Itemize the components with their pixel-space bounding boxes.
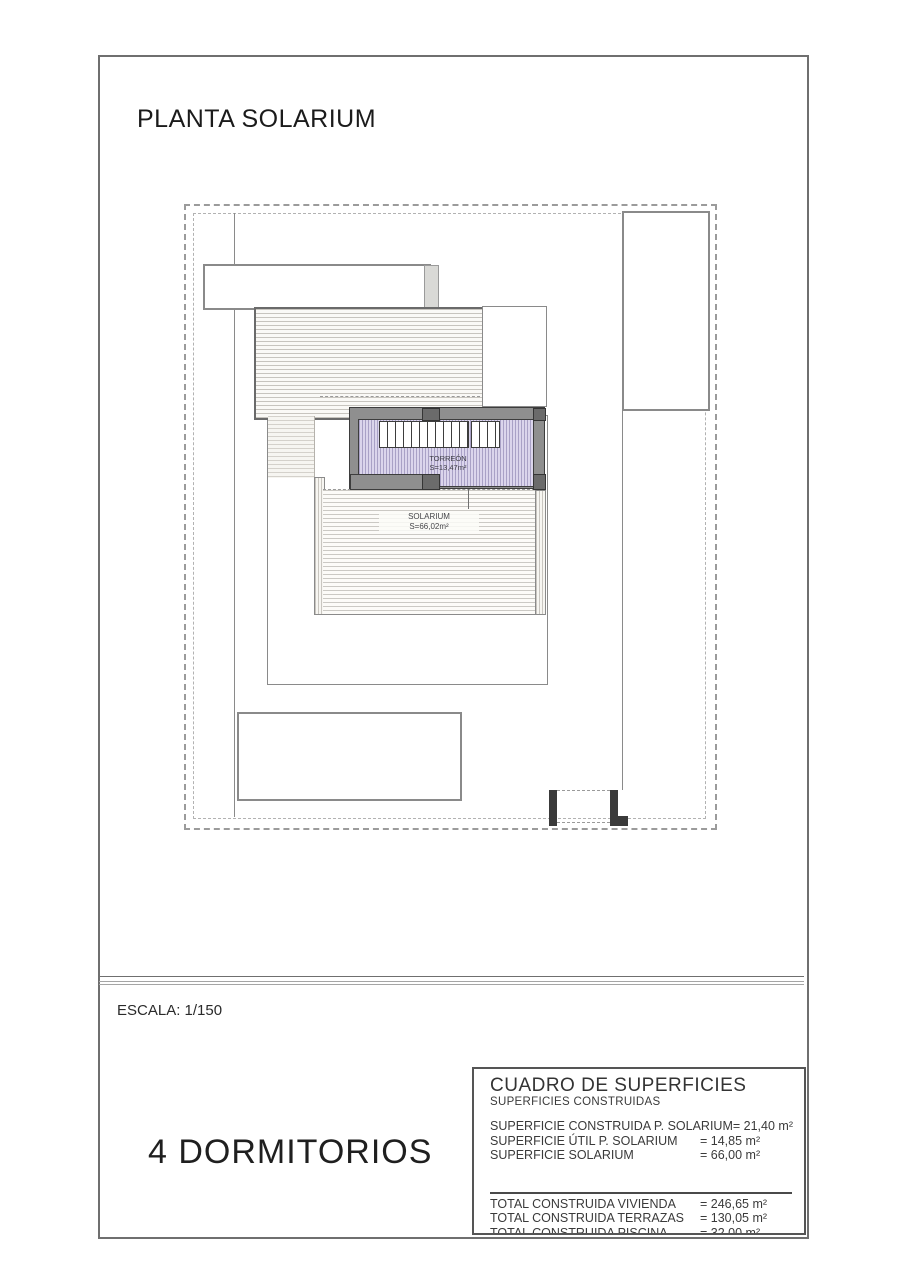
left-terrace-line (234, 306, 235, 817)
row-label: SUPERFICIE CONSTRUIDA P. SOLARIUM (490, 1119, 733, 1134)
surfaces-rows: SUPERFICIE CONSTRUIDA P. SOLARIUM = 21,4… (490, 1119, 792, 1163)
row-value: = 66,00 m² (700, 1148, 792, 1163)
sheet-divider-thin-1 (99, 981, 804, 982)
gate-dash-bottom (557, 822, 610, 823)
solarium-name: SOLARIUM (379, 512, 479, 522)
roof-dashed-edge (320, 396, 480, 397)
gate-post-left (549, 790, 557, 826)
row-label: SUPERFICIE SOLARIUM (490, 1148, 634, 1163)
walkway-hatch (268, 416, 315, 478)
torreon-pillar-top-right (533, 408, 546, 421)
lower-roof-hatch (254, 307, 486, 420)
torreon-area: S=13,47m² (390, 463, 506, 472)
roof-side-panel (482, 306, 547, 407)
surfaces-table: CUADRO DE SUPERFICIES SUPERFICIES CONSTR… (472, 1067, 806, 1235)
torreon-pillar-bottom (422, 474, 440, 490)
surfaces-subtitle: SUPERFICIES CONSTRUIDAS (490, 1096, 792, 1109)
solarium-area: S=66,02m² (379, 522, 479, 532)
surfaces-row: SUPERFICIE ÚTIL P. SOLARIUM = 14,85 m² (490, 1134, 792, 1149)
stair-step-line (468, 489, 469, 509)
totals-row: TOTAL CONSTRUIDA VIVIENDA = 246,65 m² (490, 1197, 792, 1212)
upper-wing-bar (203, 264, 431, 310)
upper-wing-column (424, 265, 439, 310)
row-label: TOTAL CONSTRUIDA TERRAZAS (490, 1211, 684, 1226)
torreon-name: TORREÓN (390, 454, 506, 463)
row-label: SUPERFICIE ÚTIL P. SOLARIUM (490, 1134, 678, 1149)
torreon-room: TORREÓN S=13,47m² (349, 407, 545, 489)
row-value: = 21,40 m² (733, 1119, 806, 1134)
left-boundary-stub-line (234, 213, 235, 265)
page-title: PLANTA SOLARIUM (137, 105, 376, 134)
solarium-label: SOLARIUM S=66,02m² (379, 512, 479, 532)
torreon-label: TORREÓN S=13,47m² (390, 454, 506, 472)
pergola-rect (237, 712, 462, 801)
row-label: TOTAL CONSTRUIDA PISCINA (490, 1226, 668, 1235)
bedrooms-label: 4 DORMITORIOS (148, 1133, 432, 1172)
torreon-pillar-bottom-right (533, 474, 546, 490)
row-value: = 32,00 m² (700, 1226, 792, 1235)
surfaces-totals: TOTAL CONSTRUIDA VIVIENDA = 246,65 m² TO… (490, 1197, 792, 1235)
row-value: = 246,65 m² (700, 1197, 792, 1212)
row-value: = 14,85 m² (700, 1134, 792, 1149)
right-terrace-line (622, 407, 623, 790)
row-label: TOTAL CONSTRUIDA VIVIENDA (490, 1197, 676, 1212)
gate-post-right-foot (610, 816, 628, 826)
sheet-divider (99, 976, 804, 977)
surfaces-total-divider (490, 1192, 792, 1194)
drawing-sheet-page: PLANTA SOLARIUM SOLARIUM S=66,02m² TORRE… (0, 0, 904, 1280)
totals-row: TOTAL CONSTRUIDA PISCINA = 32,00 m² (490, 1226, 792, 1235)
surfaces-row: SUPERFICIE CONSTRUIDA P. SOLARIUM = 21,4… (490, 1119, 792, 1134)
totals-row: TOTAL CONSTRUIDA TERRAZAS = 130,05 m² (490, 1211, 792, 1226)
surfaces-title: CUADRO DE SUPERFICIES (490, 1076, 792, 1096)
stair-flight-2 (471, 421, 500, 448)
sheet-divider-thin-2 (99, 984, 804, 985)
torreon-pillar-top (422, 408, 440, 421)
right-roof-rect (622, 211, 710, 411)
scale-label: ESCALA: 1/150 (117, 1002, 222, 1019)
surfaces-row: SUPERFICIE SOLARIUM = 66,00 m² (490, 1148, 792, 1163)
gate-dash-top (557, 790, 610, 791)
stair-flight-1 (379, 421, 469, 448)
row-value: = 130,05 m² (700, 1211, 792, 1226)
planter-right (535, 490, 546, 615)
solarium-deck (323, 489, 535, 615)
